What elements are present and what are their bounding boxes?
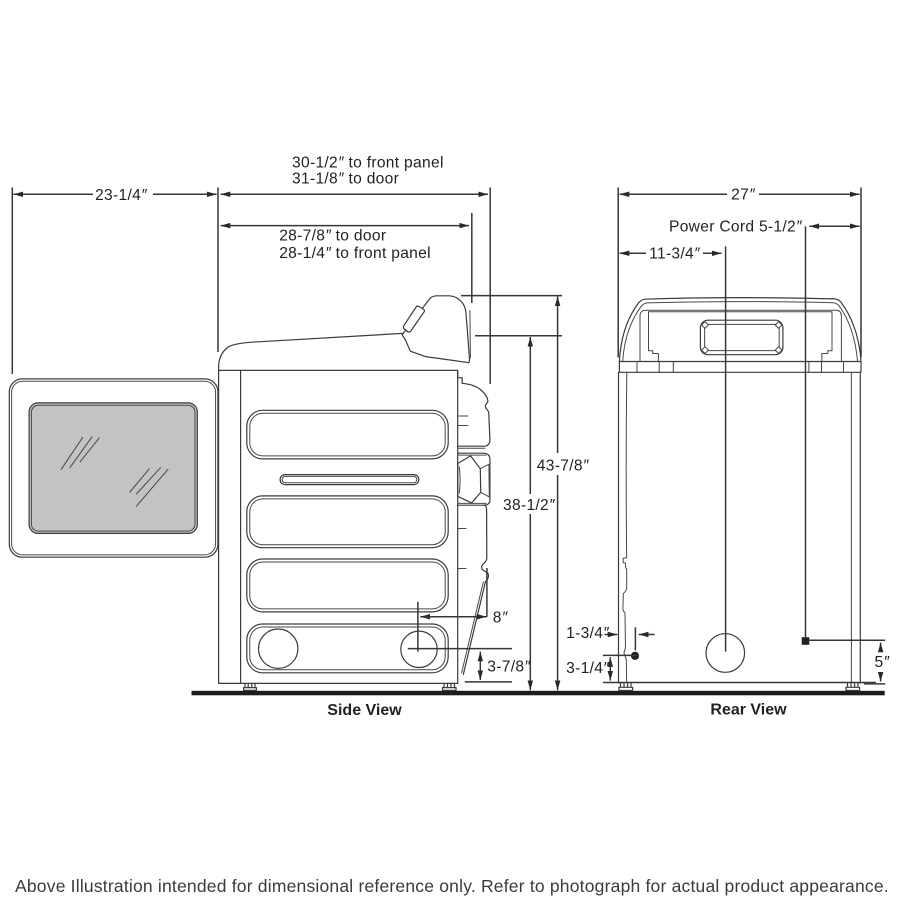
svg-text:3-1/4″: 3-1/4″: [566, 660, 609, 677]
svg-text:Above Illustration intended fo: Above Illustration intended for dimensio…: [15, 876, 889, 896]
svg-text:23-1/4″: 23-1/4″: [95, 187, 147, 204]
svg-text:8″: 8″: [493, 609, 508, 626]
svg-text:Side View: Side View: [327, 702, 402, 719]
svg-text:Rear View: Rear View: [710, 702, 787, 719]
svg-text:Power Cord 5-1/2″: Power Cord 5-1/2″: [669, 218, 802, 235]
svg-text:30-1/2″ to front panel: 30-1/2″ to front panel: [292, 155, 444, 172]
svg-text:27″: 27″: [731, 187, 755, 204]
svg-text:5″: 5″: [875, 654, 890, 671]
svg-text:28-7/8″ to door: 28-7/8″ to door: [279, 227, 386, 244]
svg-text:38-1/2″: 38-1/2″: [503, 497, 555, 514]
svg-text:28-1/4″ to front panel: 28-1/4″ to front panel: [279, 245, 431, 262]
svg-text:11-3/4″: 11-3/4″: [649, 246, 700, 263]
svg-text:1-3/4″: 1-3/4″: [566, 625, 609, 642]
svg-text:31-1/8″ to door: 31-1/8″ to door: [292, 171, 399, 188]
svg-text:3-7/8″: 3-7/8″: [487, 659, 530, 676]
svg-text:43-7/8″: 43-7/8″: [537, 457, 589, 474]
